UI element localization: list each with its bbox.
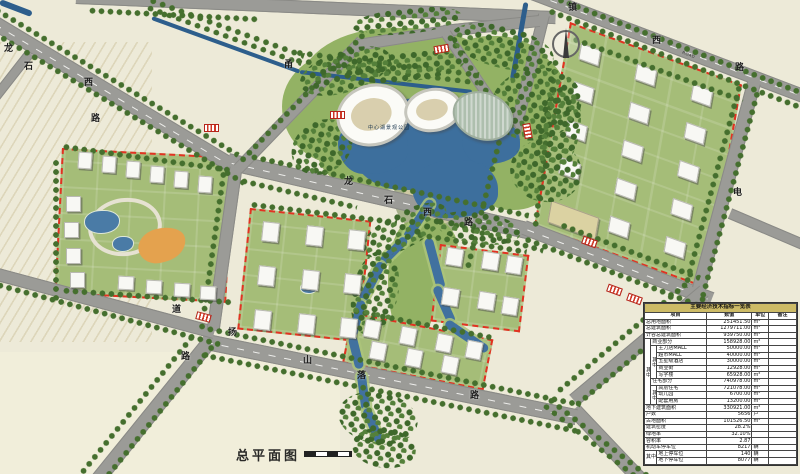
- table-row: 地下建筑面积330921.00m²: [645, 405, 797, 412]
- building: [684, 122, 707, 145]
- north-arrow-compass: [552, 30, 580, 58]
- table-row: 计容总建筑面积939750.00m²: [645, 332, 797, 339]
- road-name-char: 石: [384, 196, 393, 205]
- building: [261, 221, 280, 243]
- building: [174, 283, 191, 298]
- building: [173, 171, 188, 189]
- building: [505, 255, 524, 275]
- road-name-char: 落: [357, 371, 366, 380]
- building: [440, 355, 459, 376]
- building: [368, 341, 387, 362]
- building: [146, 280, 163, 295]
- building: [362, 319, 381, 340]
- road-name-char: 路: [470, 391, 479, 400]
- building: [64, 222, 79, 238]
- table-row: 其中地上停车位140辆: [645, 451, 797, 458]
- table-row: 幼儿园6700.00m²: [645, 392, 797, 399]
- plan-title: 总平面图: [236, 445, 300, 464]
- building: [628, 101, 651, 124]
- table-row: 地下停车位8077辆: [645, 458, 797, 465]
- stake-marker: [204, 124, 219, 132]
- road-name-char: 扬: [228, 328, 237, 337]
- building: [101, 156, 116, 174]
- building: [257, 265, 276, 287]
- table-row: 其中高层住宅721078.00m²: [645, 385, 797, 392]
- stake-marker: [626, 293, 643, 306]
- building: [608, 215, 631, 238]
- building: [66, 248, 81, 264]
- building: [200, 286, 217, 301]
- building: [343, 273, 362, 295]
- building: [305, 225, 324, 247]
- building: [125, 161, 140, 179]
- lake-park-label: 中心湖景观公园: [368, 124, 410, 131]
- building: [477, 291, 497, 311]
- building: [464, 340, 483, 361]
- road-name-char: 电: [733, 188, 742, 197]
- road-segment: [728, 208, 800, 250]
- building: [614, 177, 637, 200]
- table-row: 其中商业部分158928.00m²: [645, 339, 797, 346]
- road-name-char: 龙: [344, 177, 353, 186]
- building: [404, 348, 423, 369]
- building: [434, 333, 453, 354]
- building: [347, 229, 366, 251]
- building: [66, 196, 81, 212]
- building: [253, 309, 272, 331]
- table-row: 建筑密度28.2%: [645, 425, 797, 432]
- building: [70, 272, 85, 288]
- building: [398, 326, 417, 347]
- table-row: 五星级酒店30000.00m²: [645, 359, 797, 366]
- building: [149, 166, 164, 184]
- table-row: 绿地率32.10%: [645, 431, 797, 438]
- building: [481, 251, 501, 271]
- table-row: 住宅部分740978.00m²: [645, 378, 797, 385]
- building: [621, 139, 644, 162]
- building: [339, 317, 358, 339]
- road-name-char: 路: [735, 63, 744, 72]
- tree-row: [52, 158, 61, 300]
- road-name-char: 石: [24, 62, 33, 71]
- scale-bar: [304, 451, 352, 457]
- table-row: 配套用房13200.00m²: [645, 398, 797, 405]
- table-row: 商业街12928.00m²: [645, 365, 797, 372]
- table-row: 机动车停车位8217辆: [645, 444, 797, 451]
- table-row: 容积率2.87: [645, 438, 797, 445]
- road-name-char: 路: [181, 352, 190, 361]
- building: [118, 276, 135, 291]
- building: [197, 176, 212, 194]
- building: [670, 198, 693, 221]
- building: [677, 160, 700, 183]
- building: [445, 247, 465, 267]
- road-name-char: 路: [464, 218, 473, 227]
- road-name-char: 西: [84, 78, 93, 87]
- stake-marker: [606, 284, 623, 297]
- building: [501, 296, 520, 316]
- road-name-char: 路: [91, 114, 100, 123]
- road-name-char: 山: [303, 356, 312, 365]
- building: [301, 269, 320, 291]
- road-name-char: 甬: [284, 60, 293, 69]
- table-row: 写字楼65928.00m²: [645, 372, 797, 379]
- table-row: 其中主力店MALL50000.00m²: [645, 345, 797, 352]
- road-name-char: 道: [172, 305, 181, 314]
- stake-marker: [330, 111, 345, 119]
- master-plan-canvas: 中心湖景观公园 ROAD 龙石西路龙石西路镇西路电道路扬山落路甬 总平面图 主要…: [0, 0, 800, 474]
- building: [441, 287, 461, 307]
- road-name-char: 西: [652, 36, 661, 45]
- road-name-char: 镇: [568, 3, 577, 12]
- road-name-char: 西: [423, 208, 432, 217]
- table-row: 占地面积101526.50m²: [645, 418, 797, 425]
- building: [664, 236, 687, 259]
- building: [77, 152, 92, 170]
- table-row: 户数5656户: [645, 411, 797, 418]
- building: [297, 313, 316, 335]
- table-row: 总用地面积251451.50m²: [645, 319, 797, 326]
- table-row: 总建筑面积1279711.00m²: [645, 326, 797, 333]
- road-name-char: 龙: [4, 44, 13, 53]
- table-row: 超市MALL40000.00m²: [645, 352, 797, 359]
- indicators-table: 主要经济技术指标一览表项目数值单位备注总用地面积251451.50m²总建筑面积…: [643, 302, 798, 466]
